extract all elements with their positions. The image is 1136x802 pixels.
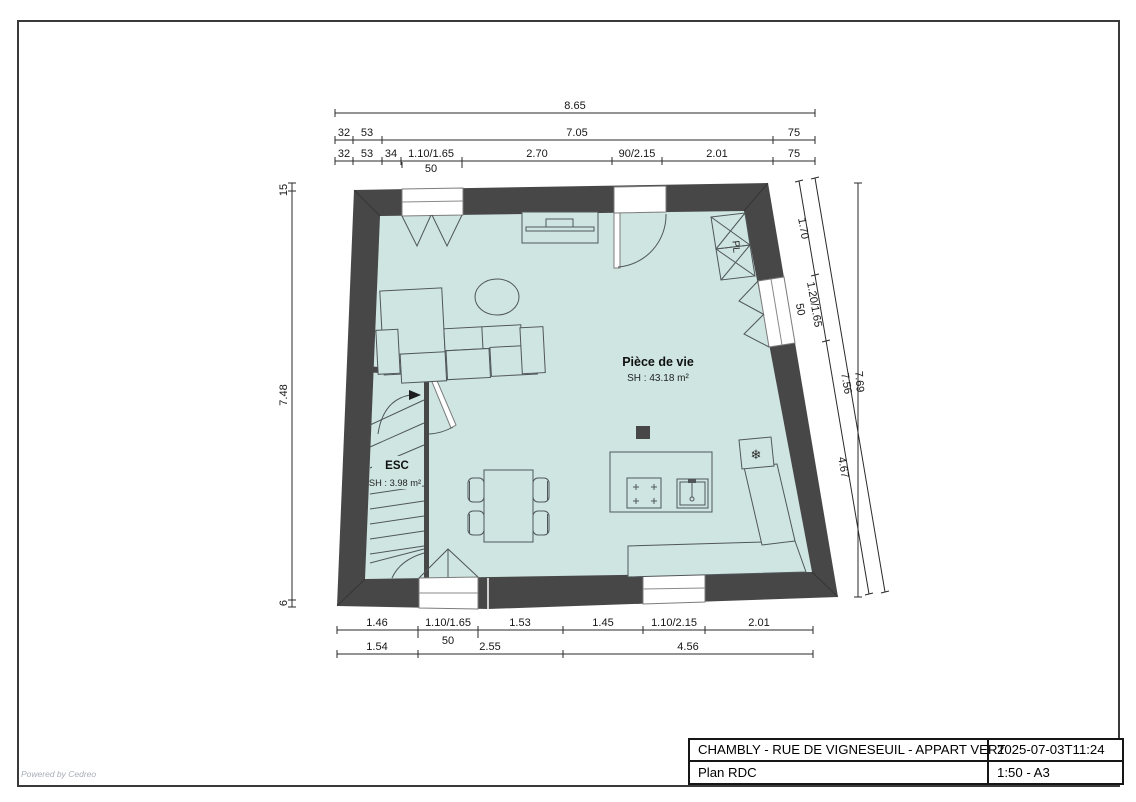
dimensions-top: 8.65 32 53 7.05 75 32 53 34 1.10/1.65 2.… (335, 100, 815, 175)
svg-text:1.20/1.65: 1.20/1.65 (804, 281, 824, 328)
dimensions-left: 15 7.48 6 (278, 183, 296, 607)
svg-text:75: 75 (788, 127, 800, 139)
dining-chair (533, 478, 549, 502)
snowflake-icon: ❄ (751, 447, 762, 462)
floor-plan-drawing: ❄ Pièce de vie SH : 43.18 m² ESC SH : 3.… (0, 0, 1136, 802)
coffee-table (475, 279, 519, 315)
dimensions-bottom: 1.46 1.10/1.65 1.53 1.45 1.10/2.15 2.01 … (337, 617, 813, 658)
svg-text:34: 34 (385, 148, 397, 160)
svg-text:1.10/1.65: 1.10/1.65 (425, 617, 471, 629)
svg-text:2.01: 2.01 (706, 148, 727, 160)
svg-text:2.01: 2.01 (748, 617, 769, 629)
svg-text:1.53: 1.53 (509, 617, 530, 629)
svg-text:1.54: 1.54 (366, 641, 387, 653)
dining-chair (468, 478, 484, 502)
svg-text:50: 50 (793, 302, 807, 316)
svg-text:7.48: 7.48 (278, 384, 290, 405)
title-block: CHAMBLY - RUE DE VIGNESEUIL - APPART VER… (688, 738, 1124, 785)
svg-text:7.56: 7.56 (838, 372, 854, 395)
svg-text:1.70: 1.70 (795, 217, 811, 240)
svg-text:75: 75 (788, 148, 800, 160)
svg-text:8.65: 8.65 (564, 100, 585, 112)
cedreo-watermark: Powered by Cedreo (21, 769, 96, 779)
svg-text:2.70: 2.70 (526, 148, 547, 160)
svg-text:1.10/1.65: 1.10/1.65 (408, 148, 454, 160)
living-room-label: Pièce de vie (622, 355, 694, 369)
svg-text:1.45: 1.45 (592, 617, 613, 629)
kitchen-island (610, 452, 712, 512)
column (636, 426, 650, 439)
title-block-scale: 1:50 - A3 (989, 762, 1122, 784)
svg-text:50: 50 (425, 163, 437, 175)
living-room-floor (365, 211, 812, 579)
svg-text:7.69: 7.69 (852, 371, 866, 393)
svg-text:2.55: 2.55 (479, 641, 500, 653)
svg-text:50: 50 (442, 635, 454, 647)
svg-text:7.05: 7.05 (566, 127, 587, 139)
svg-text:90/2.15: 90/2.15 (619, 148, 656, 160)
stairs-area: SH : 3.98 m² (369, 478, 421, 488)
svg-text:32: 32 (338, 127, 350, 139)
stairs-label: ESC (385, 460, 409, 472)
tv-stand (522, 212, 598, 243)
fridge: ❄ (739, 437, 774, 469)
svg-text:4.67: 4.67 (835, 456, 851, 479)
title-block-project: CHAMBLY - RUE DE VIGNESEUIL - APPART VER… (690, 740, 989, 762)
dining-table (484, 470, 533, 542)
dining-chair (533, 511, 549, 535)
svg-text:32: 32 (338, 148, 350, 160)
dining-chair (468, 511, 484, 535)
svg-text:15: 15 (278, 184, 290, 196)
svg-text:53: 53 (361, 148, 373, 160)
svg-text:53: 53 (361, 127, 373, 139)
svg-text:1.10/2.15: 1.10/2.15 (651, 617, 697, 629)
living-room-area: SH : 43.18 m² (627, 373, 689, 384)
closet-label: PL (729, 240, 741, 254)
stair-wall-right (424, 372, 429, 578)
svg-text:4.56: 4.56 (677, 641, 698, 653)
svg-text:6: 6 (278, 600, 290, 606)
title-block-plan-name: Plan RDC (690, 762, 989, 784)
svg-text:1.46: 1.46 (366, 617, 387, 629)
title-block-datetime: 2025-07-03T11:24 (989, 740, 1122, 762)
